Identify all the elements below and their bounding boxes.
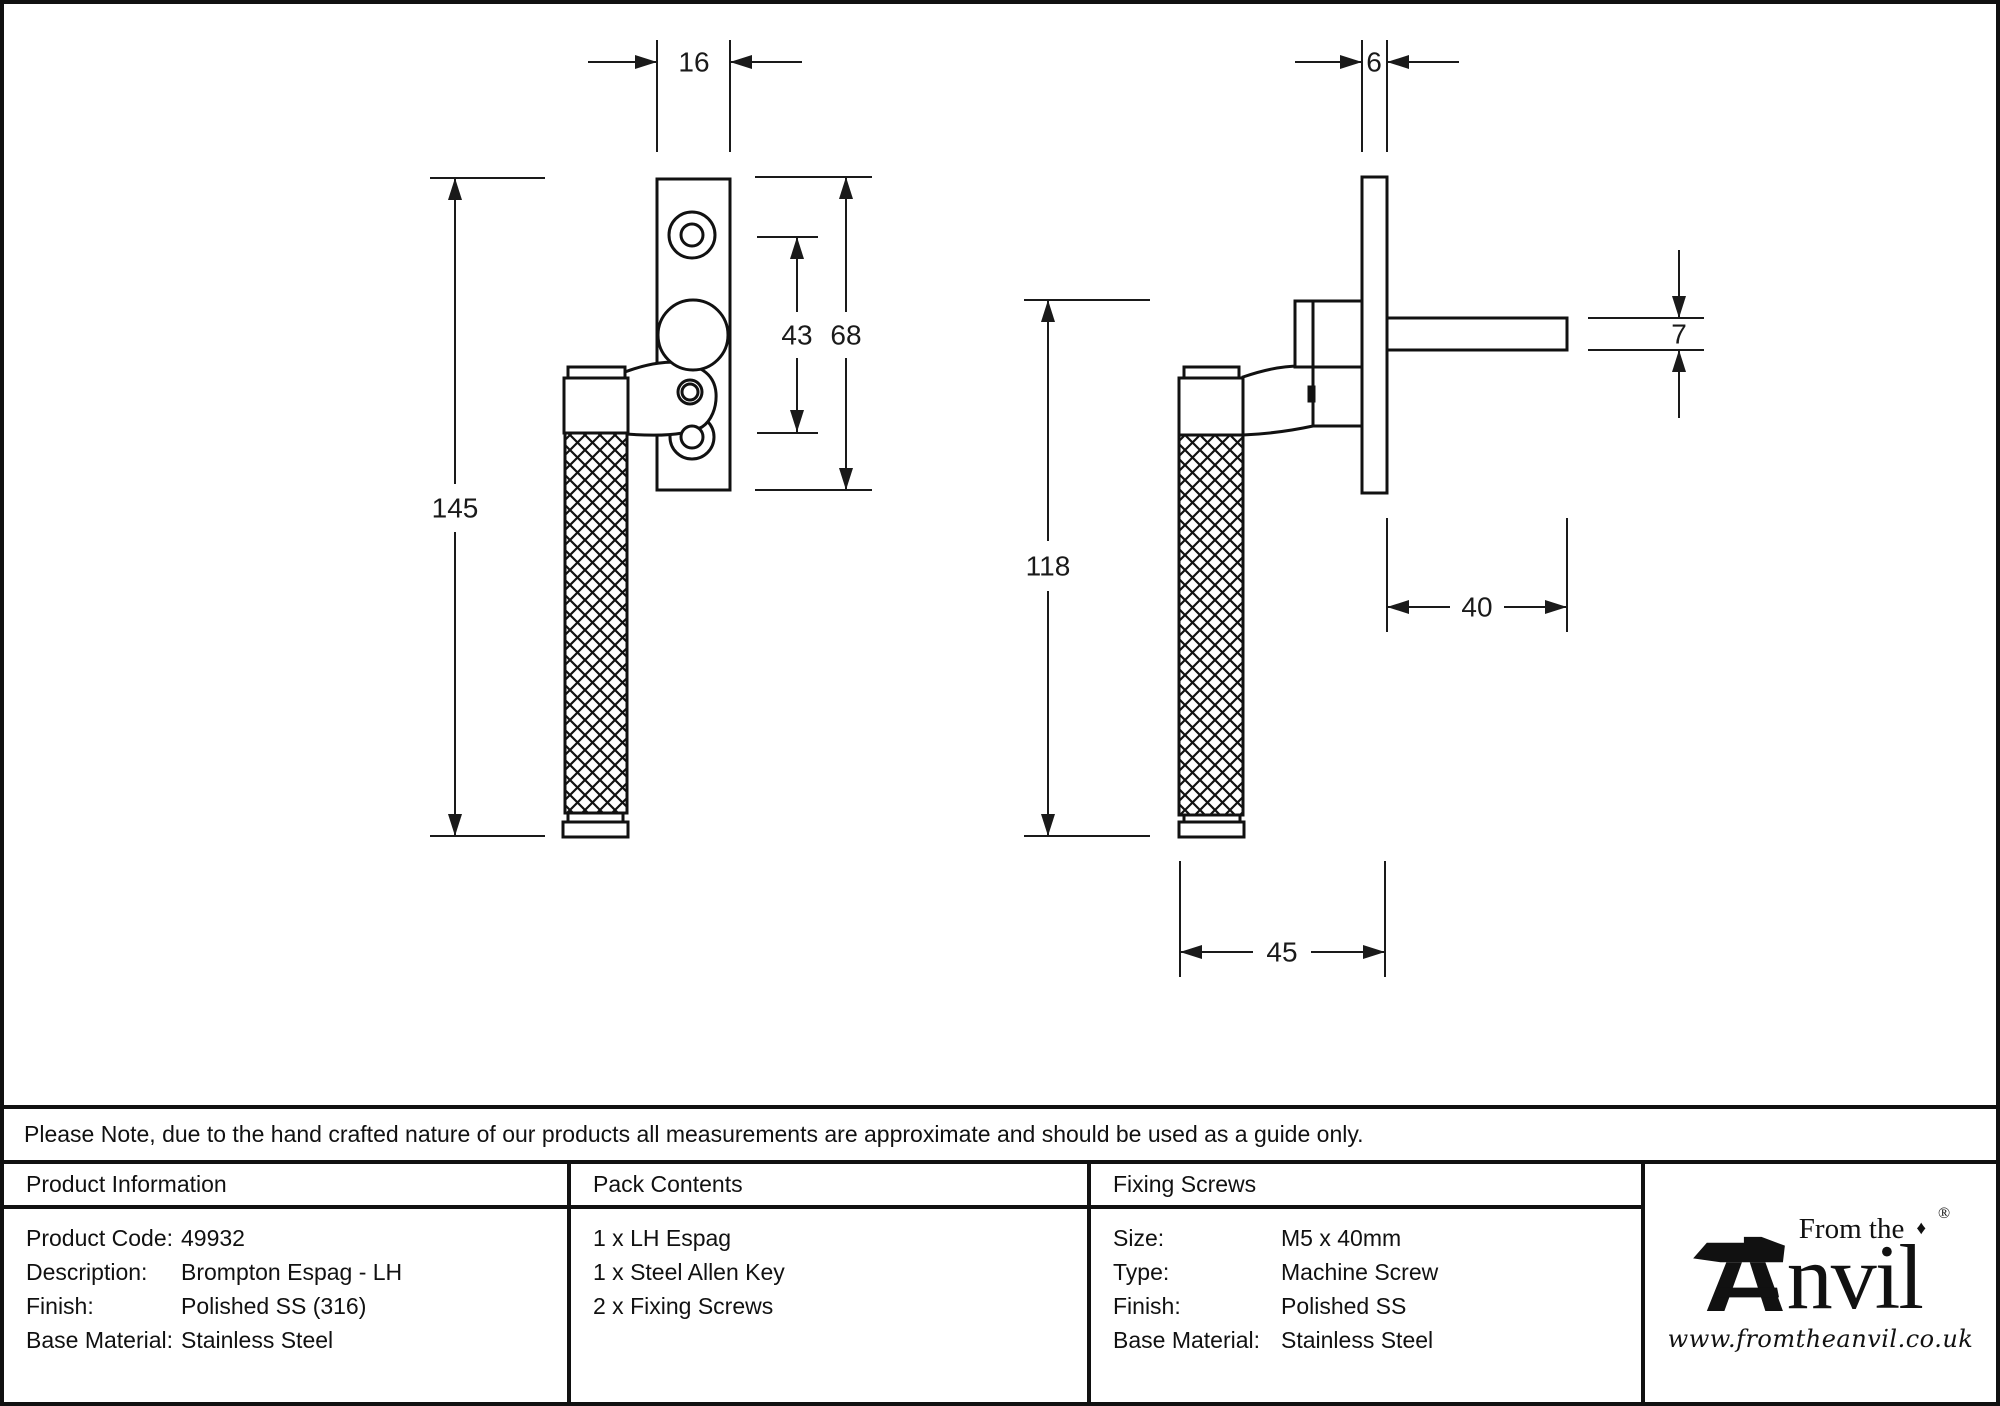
- list-item: 1 x LH Espag: [593, 1221, 1065, 1255]
- dim-side-depth: 45: [1180, 861, 1385, 977]
- side-spindle: [1387, 318, 1567, 350]
- info-table: Product Information Product Code: 49932 …: [4, 1160, 1996, 1402]
- fixing-screws-body: Size: M5 x 40mm Type: Machine Screw Fini…: [1091, 1209, 1641, 1357]
- brand-cell: From the ♦ ® nvil www.fromtheanvil.co.uk: [1645, 1164, 1996, 1402]
- logo-wordmark: nvil: [1787, 1242, 1922, 1314]
- pack-contents-body: 1 x LH Espag 1 x Steel Allen Key 2 x Fix…: [571, 1209, 1087, 1323]
- dim-front-width: 16: [588, 40, 802, 152]
- front-top-screw-hole-inner: [681, 224, 703, 246]
- list-item: 1 x Steel Allen Key: [593, 1255, 1065, 1289]
- dim-side-spindle-height: 7: [1588, 250, 1704, 418]
- logo-text-block: From the ♦ ® nvil: [1787, 1213, 1950, 1314]
- table-row: Type: Machine Screw: [1113, 1255, 1619, 1289]
- row-label: Base Material:: [26, 1323, 181, 1357]
- dim-front-plate-height: 68: [755, 177, 872, 490]
- front-bottom-screw-hole-inner: [681, 426, 703, 448]
- side-hub-upper: [1295, 301, 1362, 367]
- front-pivot-inner: [682, 384, 698, 400]
- logo-website: www.fromtheanvil.co.uk: [1668, 1325, 1974, 1353]
- row-value: Polished SS (316): [181, 1289, 545, 1323]
- row-label: Description:: [26, 1255, 181, 1289]
- spec-sheet-page: 16 145 43 68: [0, 0, 2000, 1406]
- row-label: Finish:: [26, 1289, 181, 1323]
- product-information-header: Product Information: [4, 1164, 567, 1209]
- dim-label-145: 145: [432, 493, 479, 524]
- side-hub-lower: [1313, 367, 1362, 426]
- side-knurled-grip: [1179, 435, 1243, 815]
- product-information-body: Product Code: 49932 Description: Brompto…: [4, 1209, 567, 1357]
- row-value: Brompton Espag - LH: [181, 1255, 545, 1289]
- dim-label-6: 6: [1366, 47, 1382, 78]
- dim-label-7: 7: [1671, 319, 1687, 350]
- dim-label-43: 43: [781, 320, 812, 351]
- dim-label-118: 118: [1026, 551, 1071, 582]
- logo-main: From the ♦ ® nvil: [1691, 1213, 1950, 1314]
- dim-front-hole-spacing: 43: [757, 237, 818, 433]
- dim-label-68: 68: [830, 320, 861, 351]
- side-end-cap: [1179, 822, 1244, 837]
- dim-label-45: 45: [1266, 937, 1297, 968]
- dim-label-16: 16: [678, 47, 709, 78]
- from-the-anvil-logo: From the ♦ ® nvil www.fromtheanvil.co.uk: [1668, 1213, 1974, 1354]
- fixing-screws-section: Fixing Screws Size: M5 x 40mm Type: Mach…: [1091, 1164, 1645, 1402]
- front-view: [563, 179, 730, 837]
- list-item: 2 x Fixing Screws: [593, 1289, 1065, 1323]
- row-label: Finish:: [1113, 1289, 1281, 1323]
- row-value: Stainless Steel: [181, 1323, 545, 1357]
- dim-front-length: 145: [430, 178, 545, 836]
- measurement-note-row: Please Note, due to the hand crafted nat…: [4, 1105, 1996, 1160]
- table-row: Description: Brompton Espag - LH: [26, 1255, 545, 1289]
- dim-side-spindle-length: 40: [1387, 518, 1567, 632]
- row-value: 49932: [181, 1221, 545, 1255]
- table-row: Product Code: 49932: [26, 1221, 545, 1255]
- row-value: Polished SS: [1281, 1289, 1619, 1323]
- front-collar: [564, 378, 628, 433]
- measurement-note-text: Please Note, due to the hand crafted nat…: [24, 1121, 1364, 1148]
- table-row: Finish: Polished SS: [1113, 1289, 1619, 1323]
- front-end-cap: [563, 822, 628, 837]
- front-collar-cap: [568, 367, 625, 378]
- side-backplate: [1362, 177, 1387, 493]
- row-label: Base Material:: [1113, 1323, 1281, 1357]
- side-view: [1179, 177, 1567, 837]
- row-value: Stainless Steel: [1281, 1323, 1619, 1357]
- pack-contents-section: Pack Contents 1 x LH Espag 1 x Steel All…: [571, 1164, 1091, 1402]
- product-information-section: Product Information Product Code: 49932 …: [4, 1164, 571, 1402]
- front-knurled-grip: [565, 433, 627, 813]
- dim-side-handle-length: 118: [1024, 300, 1150, 836]
- table-row: Size: M5 x 40mm: [1113, 1221, 1619, 1255]
- side-collar-cap: [1184, 367, 1239, 378]
- row-value: Machine Screw: [1281, 1255, 1619, 1289]
- table-row: Base Material: Stainless Steel: [1113, 1323, 1619, 1357]
- technical-drawing: 16 145 43 68: [4, 4, 1996, 1105]
- front-knob: [658, 300, 728, 370]
- pack-contents-header: Pack Contents: [571, 1164, 1087, 1209]
- row-label: Size:: [1113, 1221, 1281, 1255]
- anvil-icon: [1691, 1233, 1789, 1313]
- registered-mark: ®: [1938, 1205, 1950, 1223]
- dim-label-40: 40: [1461, 592, 1492, 623]
- row-value: M5 x 40mm: [1281, 1221, 1619, 1255]
- row-label: Product Code:: [26, 1221, 181, 1255]
- side-grub-screw: [1308, 386, 1315, 402]
- side-handle-arm: [1243, 366, 1313, 435]
- row-label: Type:: [1113, 1255, 1281, 1289]
- table-row: Base Material: Stainless Steel: [26, 1323, 545, 1357]
- fixing-screws-header: Fixing Screws: [1091, 1164, 1641, 1209]
- table-row: Finish: Polished SS (316): [26, 1289, 545, 1323]
- side-collar: [1179, 378, 1243, 435]
- dim-side-plate-thickness: 6: [1295, 40, 1459, 152]
